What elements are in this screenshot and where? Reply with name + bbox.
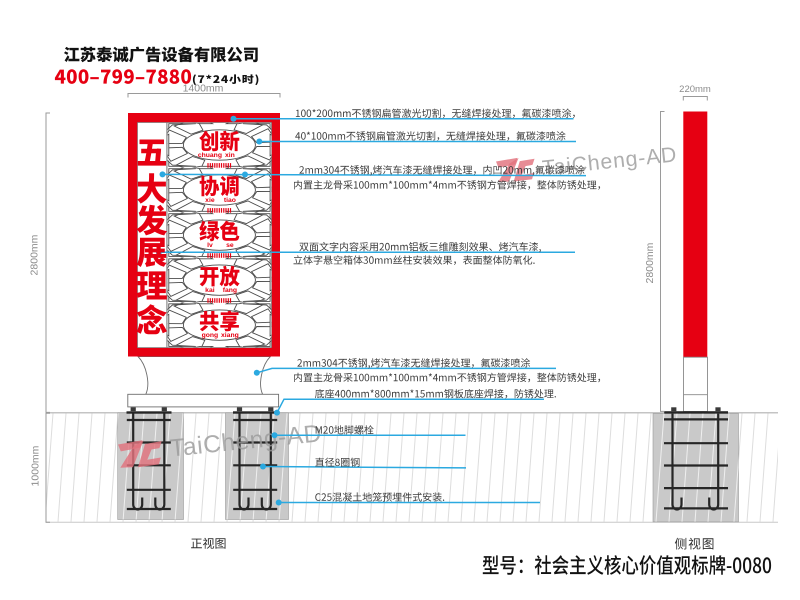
svg-text:1000mm: 1000mm [30, 445, 42, 486]
svg-text:kai: kai [205, 287, 215, 294]
svg-text:2800mm: 2800mm [644, 242, 656, 283]
svg-text:gong: gong [202, 332, 219, 339]
svg-text:fang: fang [223, 287, 237, 294]
svg-text:xiang: xiang [221, 332, 239, 339]
svg-text:chuang: chuang [198, 152, 222, 159]
svg-text:xie: xie [205, 197, 215, 204]
svg-text:1400mm: 1400mm [183, 83, 224, 95]
svg-text:lv: lv [207, 242, 213, 249]
svg-text:220mm: 220mm [679, 84, 711, 95]
svg-text:2800mm: 2800mm [29, 234, 41, 275]
svg-text:tiao: tiao [224, 197, 236, 204]
svg-text:xin: xin [225, 152, 235, 159]
svg-text:se: se [226, 242, 234, 249]
